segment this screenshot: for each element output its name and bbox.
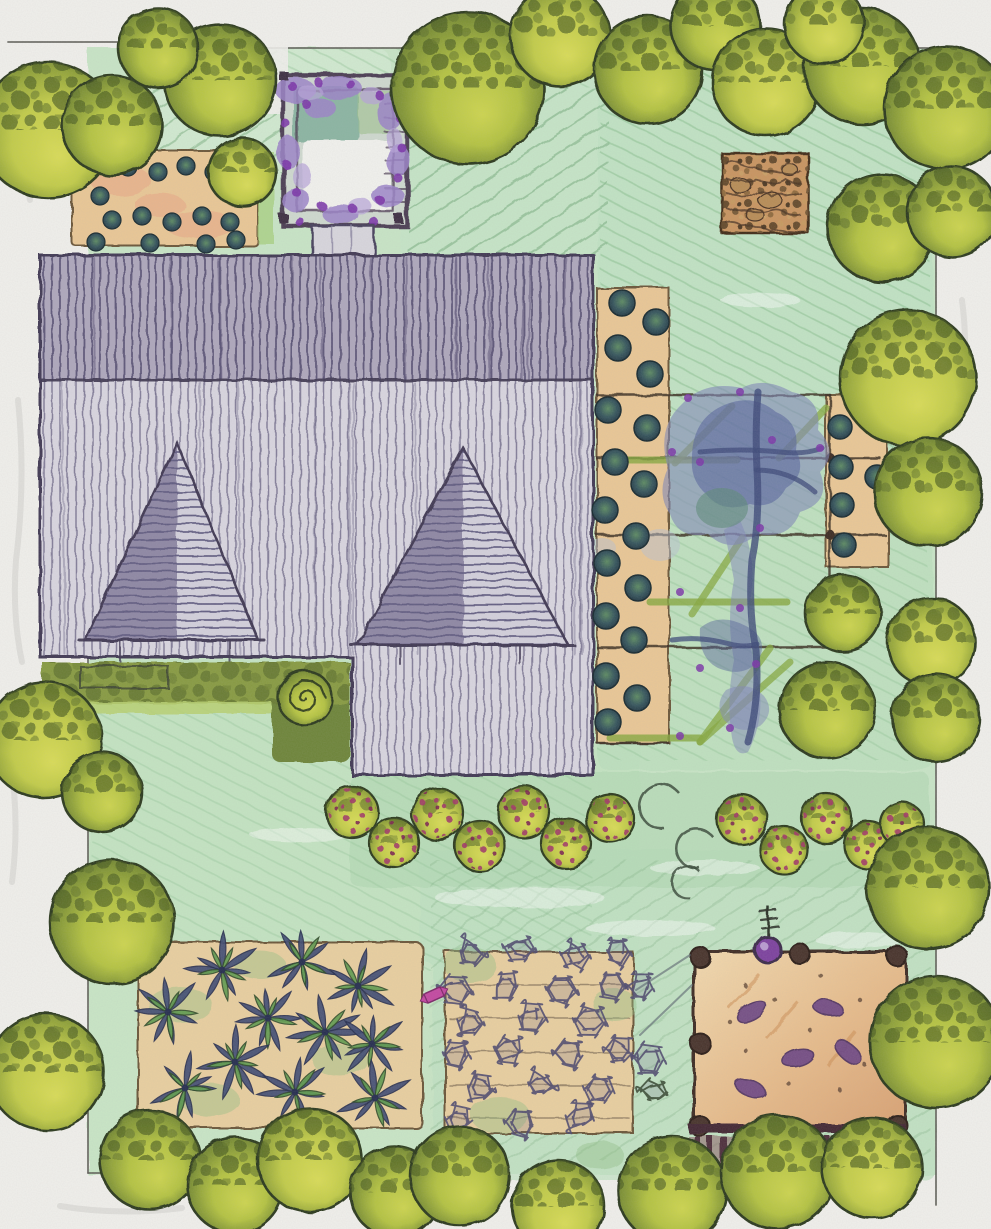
- orchard-plant: [621, 627, 647, 653]
- vegetable-plant: [149, 163, 167, 181]
- orchard-plant: [624, 685, 650, 711]
- orchard-plant: [634, 415, 660, 441]
- landscape-plan: [0, 0, 991, 1229]
- wisteria-dot: [282, 120, 291, 129]
- plan-svg: [0, 0, 991, 1229]
- patio-speckle: [858, 998, 862, 1002]
- vegetable-plant: [103, 211, 121, 229]
- wisteria-dot: [376, 92, 385, 101]
- wisteria-dot: [398, 144, 407, 153]
- plant-center: [265, 1015, 272, 1022]
- orchard-plant: [830, 493, 854, 517]
- patio-speckle: [728, 1020, 732, 1024]
- vegetable-plant: [177, 157, 195, 175]
- plant-center: [232, 1059, 239, 1066]
- tree-canopy-shading: [784, 0, 864, 24]
- grape-dot: [676, 588, 684, 596]
- shrub-flowers: [328, 788, 376, 836]
- wisteria-dot: [282, 160, 291, 169]
- shrub-flowers: [588, 796, 632, 840]
- orchard-plant: [594, 550, 620, 576]
- shrub-flowers: [719, 797, 765, 843]
- plant-center: [369, 1041, 376, 1048]
- shrub-flowers: [543, 820, 589, 866]
- patio-post: [690, 1033, 710, 1053]
- grape-dot: [752, 660, 760, 668]
- orchard-plant: [602, 449, 628, 475]
- plant-center: [165, 1009, 172, 1016]
- plant-center: [355, 983, 362, 990]
- wisteria-dot: [302, 100, 311, 109]
- ornament-ball: [755, 937, 781, 963]
- plant-center: [292, 1089, 299, 1096]
- shrub-flowers: [371, 820, 417, 866]
- patio-speckle: [773, 998, 777, 1002]
- vegetable-plant: [227, 231, 245, 249]
- vegetable-plant: [133, 207, 151, 225]
- wisteria-dot: [318, 202, 327, 211]
- vegetable-plant: [221, 213, 239, 231]
- patio-speckle: [788, 1083, 792, 1087]
- grape-dot: [676, 732, 684, 740]
- shrub-flowers: [762, 828, 806, 872]
- wisteria-blob: [292, 164, 312, 188]
- foliage-blob: [696, 488, 748, 528]
- roof-upper-stripes: [40, 255, 593, 380]
- orchard-plant: [643, 309, 669, 335]
- orchard-plant: [609, 290, 635, 316]
- lawn-highlight-streak: [720, 293, 800, 307]
- grape-dot: [816, 444, 824, 452]
- roof-pencil-stroke: [315, 383, 316, 654]
- patio-speckle: [743, 1048, 747, 1052]
- wisteria-dot: [288, 82, 297, 91]
- patio-speckle: [808, 1028, 812, 1032]
- orchard-plant: [832, 533, 856, 557]
- vegetable-plant: [87, 233, 105, 251]
- orchard-plant: [829, 455, 853, 479]
- vegetable-plant: [197, 235, 215, 253]
- path-to-house: [312, 226, 374, 256]
- compost-area: [722, 153, 808, 233]
- tree-canopy-shading: [510, 0, 610, 36]
- bed-wash: [576, 1141, 624, 1169]
- orchard-plant: [631, 471, 657, 497]
- orchard-plant: [592, 497, 618, 523]
- vegetable-plant: [193, 207, 211, 225]
- orchard-plant: [593, 603, 619, 629]
- patio-speckle: [863, 1063, 867, 1067]
- patio-post: [690, 947, 710, 967]
- plant-center: [219, 967, 226, 974]
- wisteria-dot: [394, 174, 403, 183]
- plant-center: [182, 1085, 189, 1092]
- patio-speckle: [838, 1088, 842, 1092]
- orchard-plant: [605, 335, 631, 361]
- plant-center: [372, 1095, 379, 1102]
- plant-center: [299, 959, 306, 966]
- grape-dot: [756, 524, 764, 532]
- wisteria-dot: [296, 218, 305, 227]
- pergola-post: [279, 71, 288, 80]
- vegetable-plant: [141, 234, 159, 252]
- shrub-flowers: [500, 788, 548, 836]
- wisteria-dot: [346, 80, 355, 89]
- grape-dot: [696, 458, 704, 466]
- grape-dot: [668, 448, 676, 456]
- patio-speckle: [743, 983, 747, 987]
- patio-speckle: [818, 973, 822, 977]
- vegetable-plant: [91, 187, 109, 205]
- wisteria-dot: [348, 204, 357, 213]
- wisteria-dot: [292, 188, 301, 197]
- vegetable-plant: [163, 213, 181, 231]
- pergola-post: [394, 214, 403, 223]
- wisteria-blob: [318, 76, 362, 100]
- roof-pencil-stroke: [456, 258, 457, 378]
- grape-dot: [736, 604, 744, 612]
- grape-dot: [768, 436, 776, 444]
- patio-post: [790, 944, 810, 964]
- plant-leaf: [265, 1018, 270, 1048]
- wisteria-blob: [372, 185, 404, 207]
- orchard-plant: [595, 709, 621, 735]
- lawn-highlight-streak: [650, 860, 760, 876]
- grape-dot: [726, 724, 734, 732]
- shrub-flowers: [803, 795, 849, 841]
- plant-center: [322, 1029, 329, 1036]
- shrub-flowers: [414, 790, 462, 838]
- patio-post: [887, 946, 907, 966]
- roof-pencil-stroke: [171, 258, 172, 378]
- orchard-plant: [637, 361, 663, 387]
- orchard-plant: [595, 397, 621, 423]
- orchard-plant: [625, 575, 651, 601]
- wisteria-dot: [314, 78, 323, 87]
- shrub-flowers: [457, 823, 503, 869]
- pergola-court: [275, 71, 410, 256]
- grape-dot: [696, 664, 704, 672]
- lawn-highlight-streak: [435, 888, 605, 908]
- grape-dot: [736, 388, 744, 396]
- pergola-post: [279, 214, 288, 223]
- orchard-plant: [623, 523, 649, 549]
- roof-wing-stripes: [352, 657, 593, 775]
- lawn-highlight-streak: [585, 920, 715, 936]
- tree-canopy-shading: [670, 0, 760, 25]
- grape-dot: [684, 394, 692, 402]
- roof-pencil-stroke: [349, 383, 350, 654]
- wisteria-dot: [376, 196, 385, 205]
- orchard-plant: [828, 415, 852, 439]
- ornament-highlight: [760, 942, 768, 950]
- orchard-plant: [593, 663, 619, 689]
